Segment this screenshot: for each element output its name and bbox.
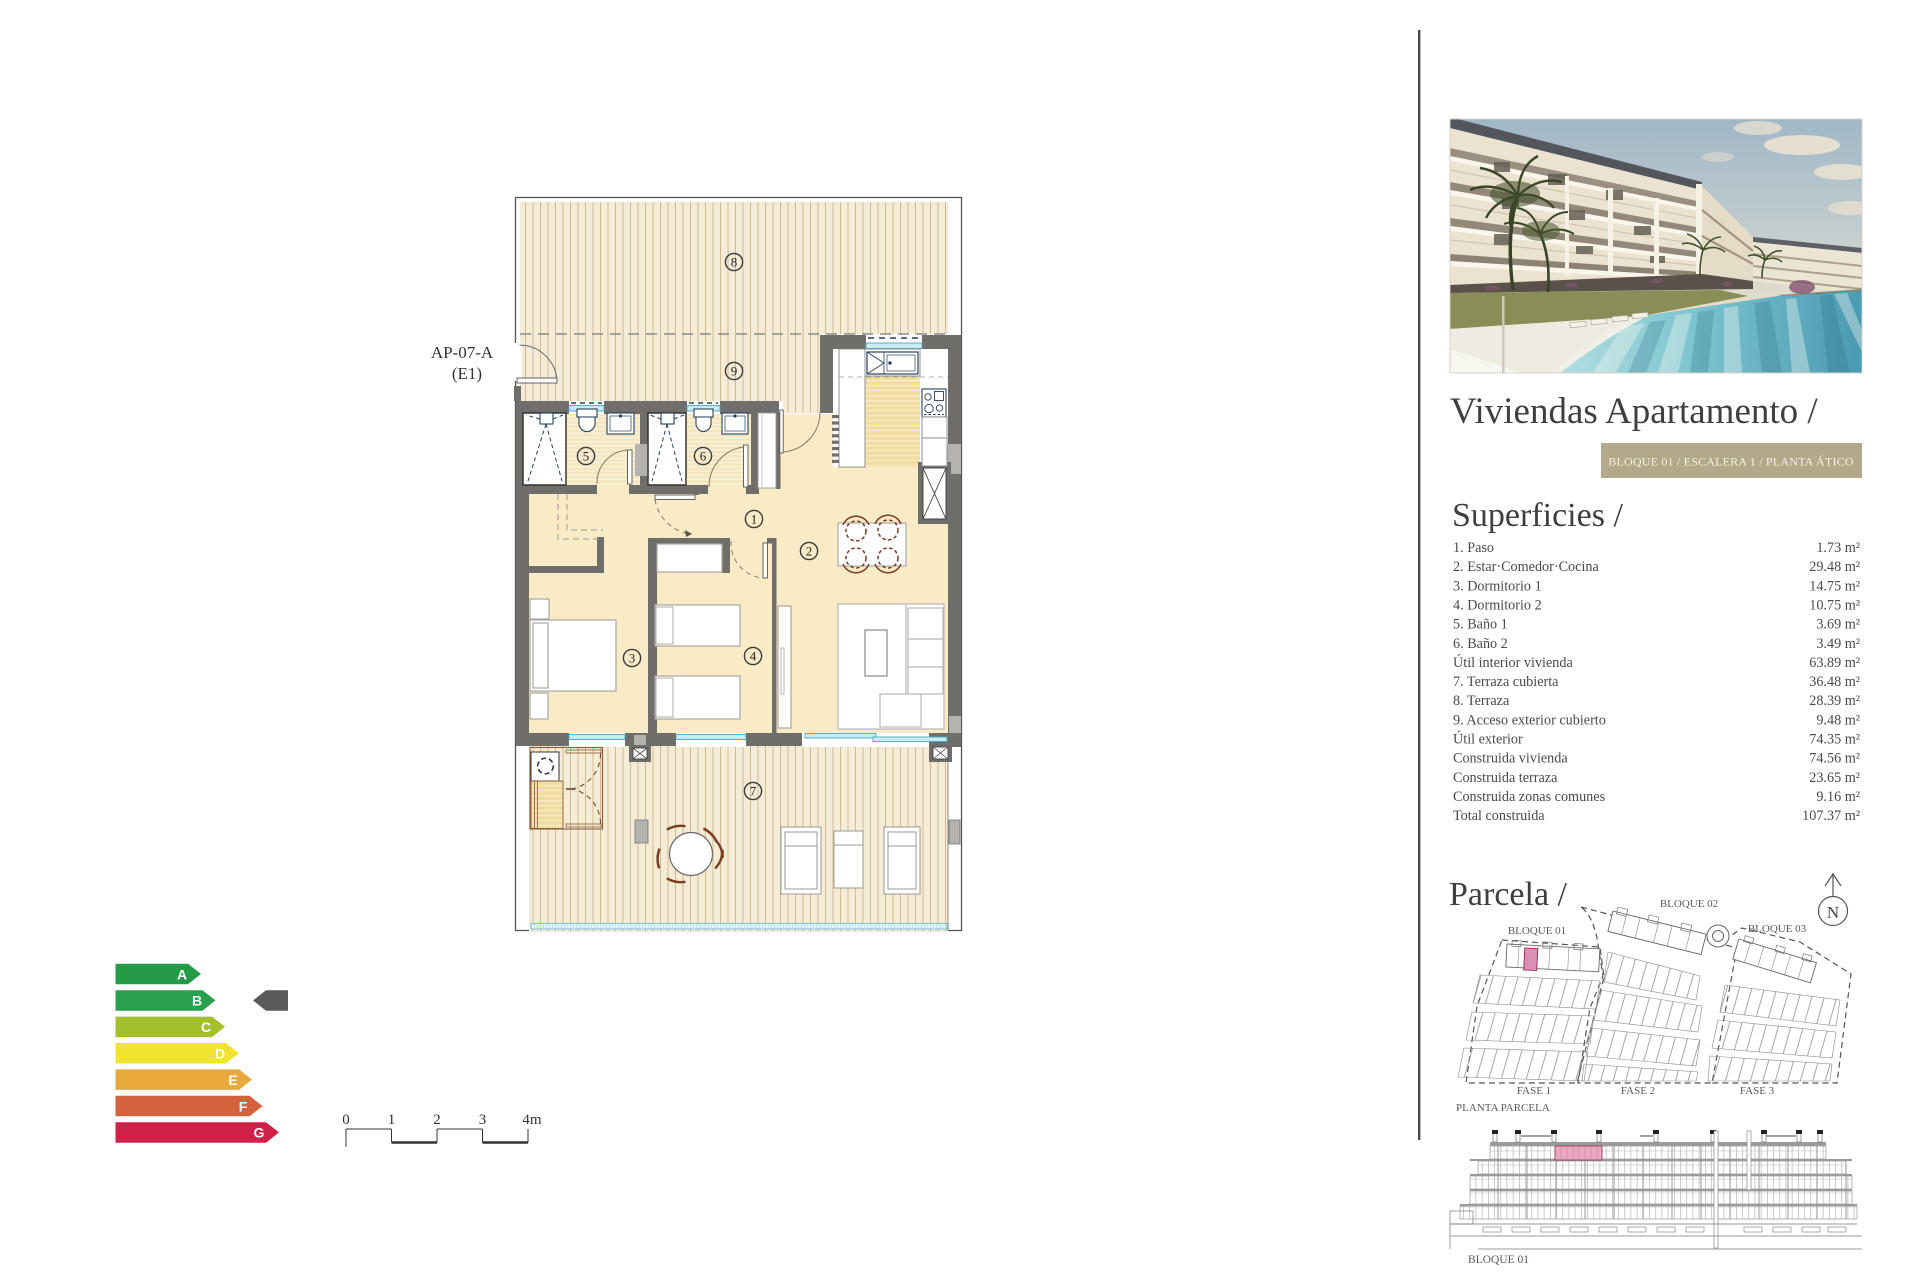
svg-text:9. Acceso exterior cubierto: 9. Acceso exterior cubierto	[1453, 712, 1606, 728]
svg-text:9.16 m²: 9.16 m²	[1816, 789, 1860, 805]
svg-text:BLOQUE 01 / ESCALERA 1 / PLANT: BLOQUE 01 / ESCALERA 1 / PLANTA ÁTICO	[1608, 455, 1854, 469]
svg-text:7: 7	[750, 784, 757, 799]
svg-text:FASE 1: FASE 1	[1517, 1085, 1551, 1097]
svg-text:AP-07-A: AP-07-A	[431, 343, 494, 362]
svg-text:Parcela /: Parcela /	[1449, 876, 1568, 913]
svg-text:74.35 m²: 74.35 m²	[1809, 732, 1860, 748]
svg-text:8. Terraza: 8. Terraza	[1453, 693, 1510, 709]
svg-text:63.89 m²: 63.89 m²	[1809, 655, 1860, 671]
svg-text:74.56 m²: 74.56 m²	[1809, 751, 1860, 767]
svg-text:G: G	[254, 1125, 265, 1141]
svg-text:2. Estar·Comedor·Cocina: 2. Estar·Comedor·Cocina	[1453, 559, 1599, 575]
svg-text:N: N	[1827, 903, 1839, 922]
svg-text:C: C	[201, 1019, 211, 1035]
svg-text:4: 4	[750, 649, 757, 664]
svg-text:5. Baño 1: 5. Baño 1	[1453, 617, 1508, 633]
svg-text:3: 3	[629, 651, 636, 666]
svg-text:4. Dormitorio 2: 4. Dormitorio 2	[1453, 598, 1542, 614]
svg-text:A: A	[177, 966, 187, 982]
svg-text:29.48 m²: 29.48 m²	[1809, 559, 1860, 575]
svg-text:Construida terraza: Construida terraza	[1453, 770, 1558, 786]
svg-text:F: F	[239, 1098, 248, 1114]
svg-text:Útil interior vivienda: Útil interior vivienda	[1453, 654, 1573, 671]
svg-text:Útil exterior: Útil exterior	[1453, 731, 1523, 748]
svg-text:23.65 m²: 23.65 m²	[1809, 770, 1860, 786]
svg-text:4m: 4m	[522, 1112, 542, 1128]
svg-text:14.75 m²: 14.75 m²	[1809, 578, 1860, 594]
svg-text:FASE 3: FASE 3	[1740, 1085, 1775, 1097]
svg-text:Superficies /: Superficies /	[1452, 497, 1623, 534]
svg-text:1: 1	[751, 512, 758, 527]
svg-text:9: 9	[731, 364, 738, 379]
svg-text:E: E	[228, 1072, 237, 1088]
svg-text:107.37 m²: 107.37 m²	[1802, 808, 1860, 824]
svg-text:1: 1	[388, 1112, 396, 1128]
svg-text:2: 2	[433, 1112, 441, 1128]
svg-text:3.69 m²: 3.69 m²	[1816, 617, 1860, 633]
svg-text:BLOQUE 03: BLOQUE 03	[1748, 923, 1807, 935]
svg-text:2: 2	[806, 544, 813, 559]
svg-text:PLANTA PARCELA: PLANTA PARCELA	[1456, 1102, 1550, 1114]
svg-text:B: B	[192, 993, 202, 1009]
svg-text:10.75 m²: 10.75 m²	[1809, 598, 1860, 614]
svg-text:3.49 m²: 3.49 m²	[1816, 636, 1860, 652]
svg-text:6: 6	[700, 449, 707, 464]
svg-text:3: 3	[479, 1112, 487, 1128]
svg-text:D: D	[215, 1046, 225, 1062]
svg-text:3. Dormitorio 1: 3. Dormitorio 1	[1453, 578, 1542, 594]
svg-text:BLOQUE 01: BLOQUE 01	[1508, 925, 1566, 937]
svg-text:BLOQUE 01: BLOQUE 01	[1468, 1254, 1529, 1266]
svg-text:8: 8	[731, 255, 738, 270]
svg-text:7. Terraza cubierta: 7. Terraza cubierta	[1453, 674, 1559, 690]
svg-text:Total construida: Total construida	[1453, 808, 1545, 824]
svg-text:Construida vivienda: Construida vivienda	[1453, 751, 1568, 767]
svg-text:5: 5	[583, 449, 590, 464]
svg-text:9.48 m²: 9.48 m²	[1816, 712, 1860, 728]
svg-text:FASE 2: FASE 2	[1621, 1085, 1655, 1097]
svg-text:36.48 m²: 36.48 m²	[1809, 674, 1860, 690]
svg-text:Viviendas Apartamento /: Viviendas Apartamento /	[1450, 391, 1818, 432]
svg-text:1.73 m²: 1.73 m²	[1816, 540, 1860, 556]
svg-text:6. Baño 2: 6. Baño 2	[1453, 636, 1508, 652]
svg-text:1. Paso: 1. Paso	[1453, 540, 1494, 556]
svg-text:Construida zonas comunes: Construida zonas comunes	[1453, 789, 1606, 805]
svg-text:28.39 m²: 28.39 m²	[1809, 693, 1860, 709]
svg-text:BLOQUE 02: BLOQUE 02	[1660, 898, 1718, 910]
svg-text:(E1): (E1)	[452, 364, 482, 383]
svg-text:0: 0	[342, 1112, 350, 1128]
